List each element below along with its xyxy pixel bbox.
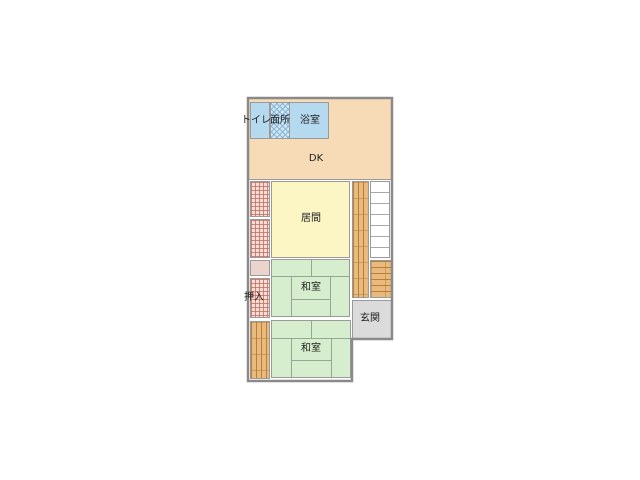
tatami-line [291,360,332,361]
tatami-line [291,338,292,377]
floor-plan: トイレ 面所 浴室 DK 居間 和室 和室 押入 玄関 [248,98,392,381]
tatami-line [311,321,312,338]
closet-upper-b [250,219,270,258]
stairs [370,181,390,258]
room-dk-label: DK [309,154,323,164]
room-washroom-label: 面所 [270,116,290,126]
tatami-line [330,276,331,316]
tatami-line [272,338,350,339]
side-wood-floor [250,321,270,379]
page: { "rooms": { "toilet": "トイレ", "washroom"… [0,0,640,480]
tatami-line [272,276,349,277]
room-tatami-lower-label: 和室 [301,344,321,354]
room-toilet-label: トイレ [241,116,271,126]
room-entrance-label: 玄関 [360,314,380,324]
wood-landing [370,260,392,298]
tatami-line [291,299,331,300]
room-living-label: 居間 [301,214,321,224]
storage-small [250,260,270,276]
room-oshiire-label: 押入 [244,293,264,303]
corridor-wood-floor [352,181,369,298]
tatami-line [311,260,312,276]
closet-upper-a [250,181,270,217]
tatami-line [291,276,292,316]
room-tatami-upper-label: 和室 [301,283,321,293]
room-bathroom-label: 浴室 [300,116,320,126]
tatami-line [331,338,332,377]
